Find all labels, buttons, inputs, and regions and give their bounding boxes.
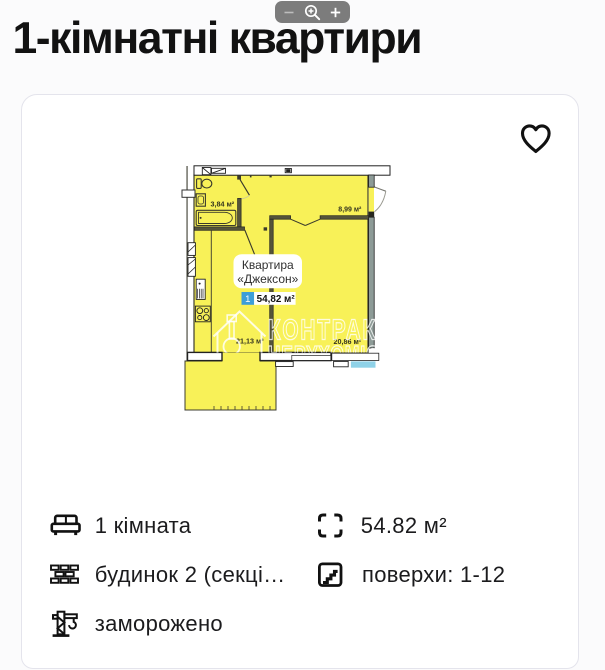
svg-text:54,82 м²: 54,82 м² (257, 294, 296, 305)
svg-text:Квартира: Квартира (242, 258, 294, 272)
svg-text:«Джексон»: «Джексон» (237, 272, 298, 286)
svg-text:8,99 м²: 8,99 м² (338, 206, 362, 213)
svg-text:3,84 м²: 3,84 м² (211, 199, 235, 208)
svg-text:1: 1 (245, 294, 250, 305)
